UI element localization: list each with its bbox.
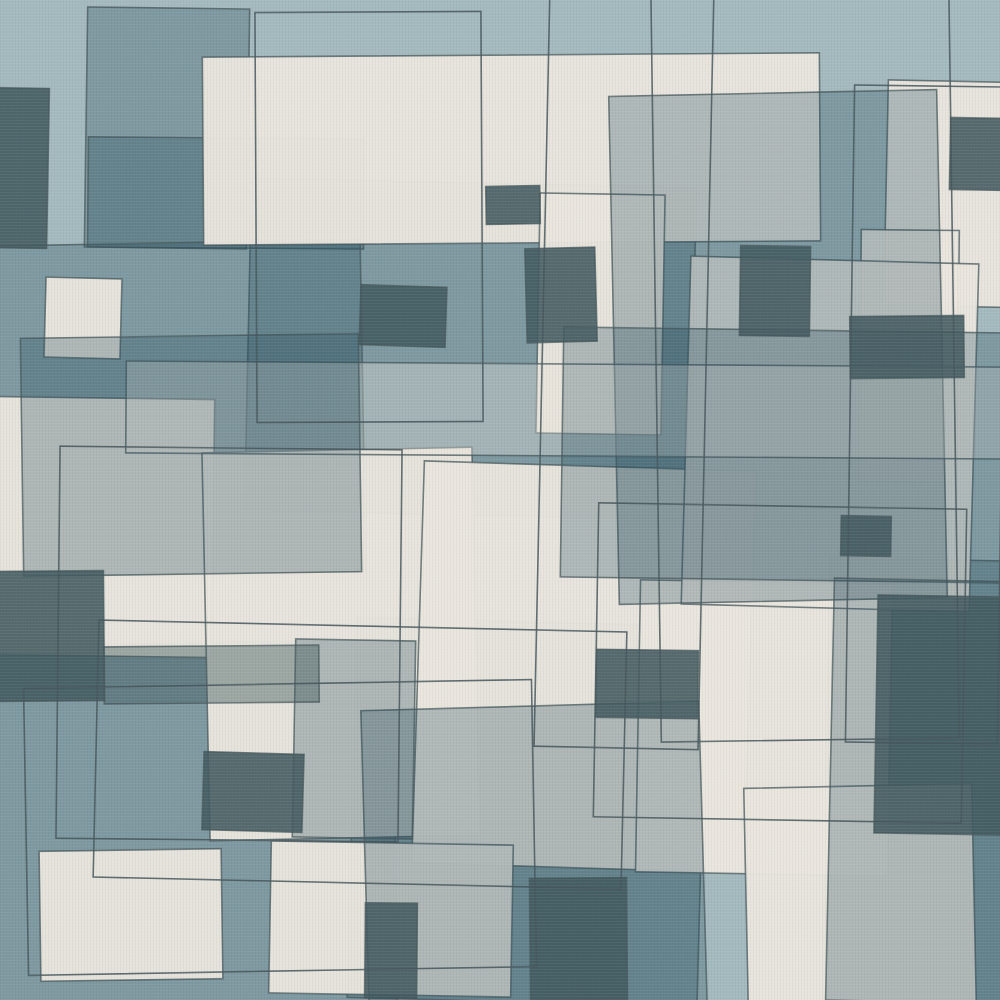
linen-noise-overlay [0,0,1000,1000]
artwork-canvas [0,0,1000,1000]
artwork-stage [0,0,1000,1000]
